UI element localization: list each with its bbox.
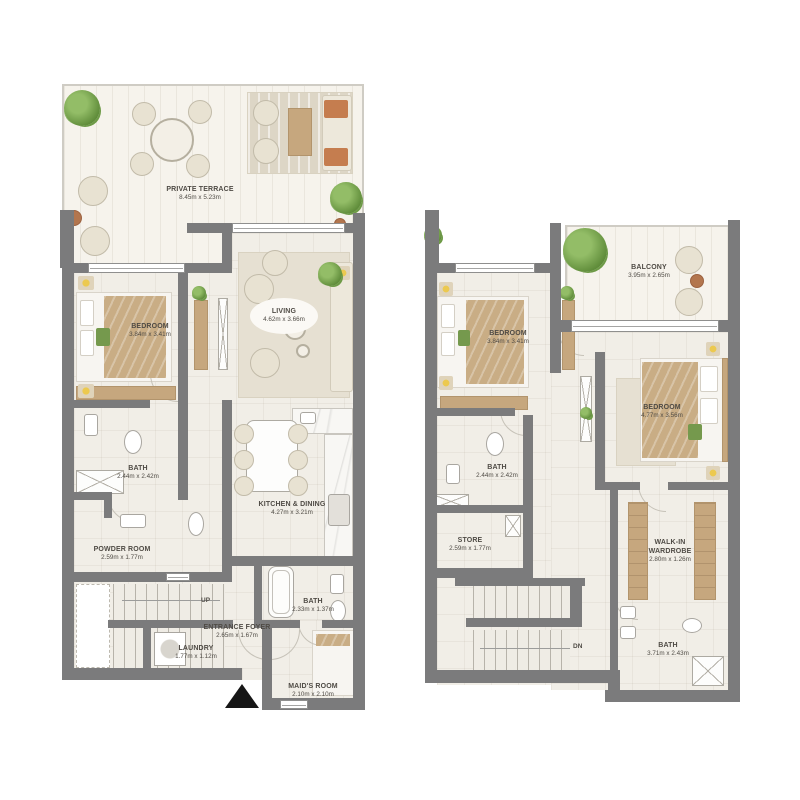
room-dims: 2.10m x 2.10m: [277, 691, 349, 699]
dining-chair: [234, 450, 254, 470]
bed-pillow: [700, 366, 718, 392]
toilet: [486, 432, 504, 456]
room-dims: 2.80m x 1.26m: [645, 556, 695, 564]
room-dims: 4.27m x 3.21m: [252, 509, 332, 517]
living-armchair: [262, 250, 288, 276]
wall: [595, 352, 605, 490]
room-name: BEDROOM: [626, 403, 698, 412]
bathroom-sink: [84, 414, 98, 436]
room-name: BATH: [102, 464, 174, 473]
wall: [668, 482, 728, 490]
wall: [62, 400, 150, 408]
store-shelf: [505, 515, 521, 537]
toilet: [188, 512, 204, 536]
wall: [222, 400, 232, 572]
room-name: POWDER ROOM: [86, 545, 158, 554]
room-name: KITCHEN & DINING: [252, 500, 332, 509]
bed-pillow: [80, 300, 94, 326]
staircase: [473, 630, 570, 670]
wall: [553, 320, 571, 332]
entrance-marker: [225, 684, 259, 708]
room-name: BEDROOM: [114, 322, 186, 331]
wall: [455, 578, 585, 586]
room-label: BATH 2.44m x 2.42m: [102, 464, 174, 481]
toilet: [682, 618, 702, 633]
window: [571, 320, 719, 332]
staircase: [473, 586, 570, 618]
room-name: LAUNDRY: [160, 644, 232, 653]
room-label: BEDROOM 3.84m x 3.41m: [472, 329, 544, 346]
room-label: PRIVATE TERRACE 8.45m x 5.23m: [139, 185, 261, 202]
room-dims: 3.95m x 2.65m: [613, 272, 685, 280]
terrace-coffee-table: [288, 108, 312, 156]
terrace-dining-chair: [188, 100, 212, 124]
dining-chair: [288, 476, 308, 496]
wall: [570, 585, 582, 627]
wall: [353, 213, 365, 710]
room-label: LAUNDRY 1.77m x 1.12m: [160, 644, 232, 661]
room-dims: 2.44m x 2.42m: [102, 473, 174, 481]
dining-chair: [234, 424, 254, 444]
bedside-lamp: [706, 342, 720, 356]
wall: [523, 415, 533, 578]
wall: [425, 408, 515, 416]
plant-icon: [330, 182, 362, 214]
room-name: PRIVATE TERRACE: [139, 185, 261, 194]
room-label: MAID'S ROOM 2.10m x 2.10m: [277, 682, 349, 699]
dining-chair: [234, 476, 254, 496]
dining-chair: [288, 424, 308, 444]
room-name: BATH: [461, 463, 533, 472]
terrace-dining-chair: [132, 102, 156, 126]
living-side-table: [296, 344, 310, 358]
wall: [178, 400, 188, 500]
room-label: BALCONY 3.95m x 2.65m: [613, 263, 685, 280]
room-label: POWDER ROOM 2.59m x 1.77m: [86, 545, 158, 562]
room-label: BATH 2.44m x 2.42m: [461, 463, 533, 480]
wall: [222, 233, 232, 273]
accent-pillow: [96, 328, 110, 346]
balcony-table: [690, 274, 704, 288]
shower: [692, 656, 724, 686]
bathroom-sink: [330, 574, 344, 594]
room-label: BEDROOM 3.84m x 3.41m: [114, 322, 186, 339]
room-dims: 2.59m x 1.77m: [86, 554, 158, 562]
wall: [62, 668, 242, 680]
wall: [60, 210, 74, 268]
terrace-lounge-chair: [253, 100, 279, 126]
sofa-cushion: [324, 100, 348, 118]
room-label: BATH 2.33m x 1.37m: [277, 597, 349, 614]
vanity-sink: [620, 626, 636, 639]
plant-icon: [560, 286, 574, 300]
window: [232, 223, 345, 233]
bedside-lamp: [706, 466, 720, 480]
vanity-sink: [120, 514, 146, 528]
room-dims: 3.71m x 2.43m: [632, 650, 704, 658]
wall: [605, 482, 640, 490]
stairs-down-label: DN: [573, 643, 582, 650]
bedside-lamp: [439, 376, 453, 390]
terrace-lounge-chair: [253, 138, 279, 164]
wall: [610, 490, 618, 680]
kitchen-sink: [300, 412, 316, 424]
accent-pillow: [458, 330, 470, 346]
stairs-up-label: UP: [201, 597, 210, 604]
room-name: BATH: [632, 641, 704, 650]
terrace-dining-chair: [130, 152, 154, 176]
wall: [466, 618, 582, 627]
room-dims: 2.59m x 1.77m: [434, 545, 506, 553]
wall: [254, 566, 262, 628]
wall: [62, 268, 74, 680]
room-dims: 1.77m x 1.12m: [160, 653, 232, 661]
wall: [262, 698, 365, 710]
room-dims: 4.77m x 3.56m: [626, 412, 698, 420]
room-name: BEDROOM: [472, 329, 544, 338]
hall-console: [562, 300, 575, 370]
stair-direction-line: [480, 648, 570, 649]
terrace-dining-chair: [186, 154, 210, 178]
wardrobe-unit: [694, 502, 716, 600]
wall: [437, 263, 455, 273]
bed-pillow: [80, 330, 94, 356]
terrace-chair: [80, 226, 110, 256]
sofa-cushion: [324, 148, 348, 166]
room-label: ENTRANCE FOYER 2.65m x 1.67m: [201, 623, 273, 640]
maids-bed-pillow: [316, 634, 350, 646]
room-dims: 2.44m x 2.42m: [461, 472, 533, 480]
plant-icon: [580, 407, 592, 419]
wall: [605, 690, 740, 702]
window: [280, 700, 308, 709]
room-label: LIVING 4.62m x 3.66m: [248, 307, 320, 324]
wall: [322, 620, 353, 628]
room-dims: 8.45m x 5.23m: [139, 194, 261, 202]
room-label: BEDROOM 4.77m x 3.56m: [626, 403, 698, 420]
wall: [104, 492, 112, 518]
bed-pillow: [700, 398, 718, 424]
wall: [232, 556, 353, 566]
wall: [608, 670, 620, 702]
terrace-chair: [78, 176, 108, 206]
room-dims: 2.65m x 1.67m: [201, 632, 273, 640]
bed-pillow: [441, 304, 455, 328]
room-name: STORE: [434, 536, 506, 545]
wall: [425, 263, 437, 683]
room-dims: 2.33m x 1.37m: [277, 606, 349, 614]
room-label: KITCHEN & DINING 4.27m x 3.21m: [252, 500, 332, 517]
window: [166, 573, 190, 581]
hall-console: [194, 300, 208, 370]
toilet: [124, 430, 142, 454]
bedside-lamp: [439, 282, 453, 296]
bedside-lamp: [78, 384, 94, 398]
room-label: WALK-IN WARDROBE 2.80m x 1.26m: [645, 538, 695, 564]
wall: [345, 223, 353, 233]
vanity-sink: [620, 606, 636, 619]
room-name: BATH: [277, 597, 349, 606]
dining-chair: [288, 450, 308, 470]
room-label: BATH 3.71m x 2.43m: [632, 641, 704, 658]
window: [455, 263, 535, 273]
wall: [550, 223, 561, 373]
plant-icon: [318, 262, 342, 286]
wall: [62, 572, 232, 582]
wall: [437, 670, 617, 683]
wall: [178, 273, 188, 408]
balcony-chair: [675, 288, 703, 316]
room-dims: 3.84m x 3.41m: [114, 331, 186, 339]
bathroom-sink: [446, 464, 460, 484]
wall: [425, 568, 523, 578]
room-label: STORE 2.59m x 1.77m: [434, 536, 506, 553]
plant-icon: [64, 90, 100, 126]
room-name: MAID'S ROOM: [277, 682, 349, 691]
stair-void: [76, 584, 110, 668]
wall: [185, 263, 222, 273]
room-name: ENTRANCE FOYER: [201, 623, 273, 632]
room-dims: 3.84m x 3.41m: [472, 338, 544, 346]
accent-pillow: [688, 424, 702, 440]
hall-cabinet: [218, 298, 228, 370]
living-armchair: [250, 348, 280, 378]
room-name: LIVING: [248, 307, 320, 316]
room-name: WALK-IN WARDROBE: [645, 538, 695, 556]
wall: [425, 505, 523, 513]
window: [88, 263, 185, 273]
wall: [728, 220, 740, 702]
plant-icon: [192, 286, 206, 300]
floor-plan-canvas: PRIVATE TERRACE 8.45m x 5.23m BEDROOM 3.…: [0, 0, 800, 800]
bed-pillow: [441, 332, 455, 356]
terrace-dining-table: [150, 118, 194, 162]
plant-icon: [563, 228, 607, 272]
room-dims: 4.62m x 3.66m: [248, 316, 320, 324]
room-name: BALCONY: [613, 263, 685, 272]
wall: [187, 223, 232, 233]
bedside-lamp: [78, 276, 94, 290]
